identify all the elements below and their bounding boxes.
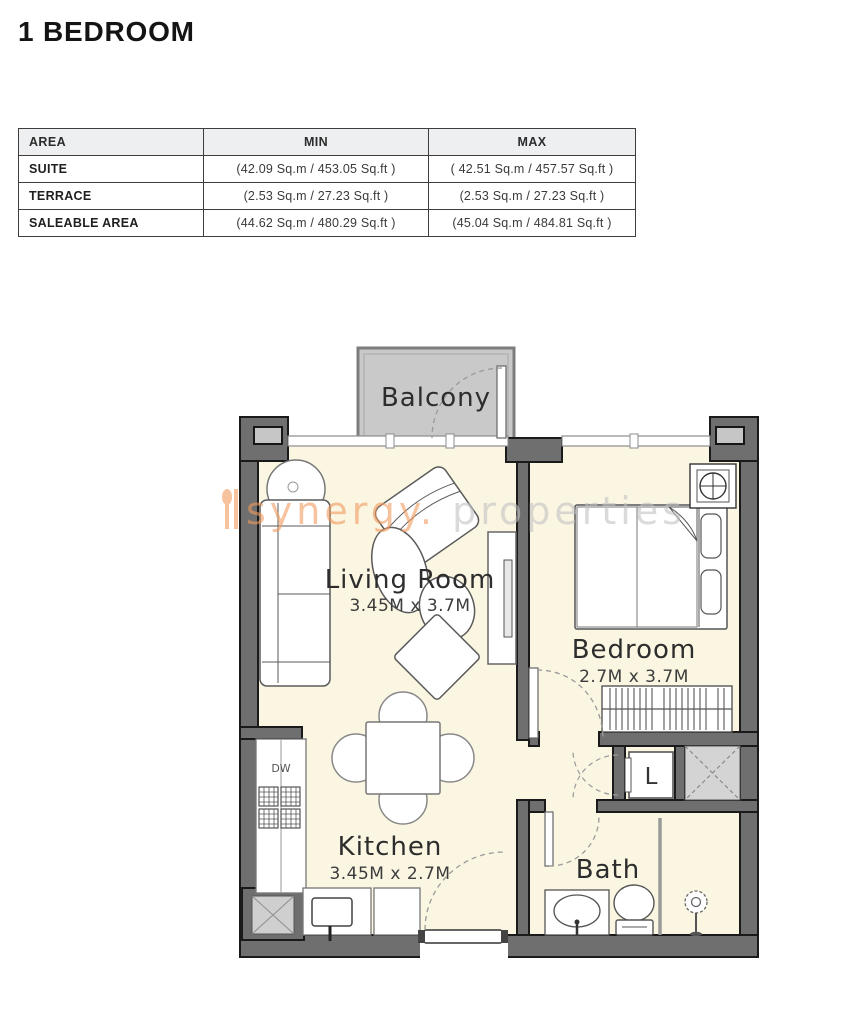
floor-plan: Balcony Living Room 3.45M x 3.7M Bedroom… [0, 0, 850, 1020]
living-room-dims: 3.45M x 3.7M [349, 596, 470, 616]
svg-text:synergy. properties: synergy. properties [246, 489, 686, 533]
shaft-right [685, 746, 740, 800]
bath-vanity [545, 890, 609, 935]
bath-label: Bath [576, 855, 640, 885]
shaft-bottom-left [252, 896, 294, 934]
tv-unit [488, 532, 516, 664]
balcony-label: Balcony [381, 383, 491, 413]
watermark: synergy. properties [222, 489, 686, 533]
pillow [701, 570, 721, 614]
wardrobe [602, 686, 732, 732]
sink-counter [303, 888, 371, 941]
living-room-label: Living Room [325, 565, 496, 595]
bedroom-dims: 2.7M x 3.7M [579, 667, 689, 687]
kitchen-dims: 3.45M x 2.7M [329, 864, 450, 884]
kitchen-label: Kitchen [338, 832, 443, 862]
counter-2 [374, 888, 420, 935]
watermark-part2: properties [452, 489, 686, 533]
bedroom-label: Bedroom [572, 635, 697, 665]
laundry-label: L [645, 764, 658, 790]
dishwasher-label: DW [271, 762, 290, 775]
watermark-icon [222, 489, 238, 529]
watermark-part1: synergy. [246, 489, 436, 533]
ac-unit [690, 464, 736, 508]
pillow [701, 514, 721, 558]
toilet [614, 885, 654, 935]
